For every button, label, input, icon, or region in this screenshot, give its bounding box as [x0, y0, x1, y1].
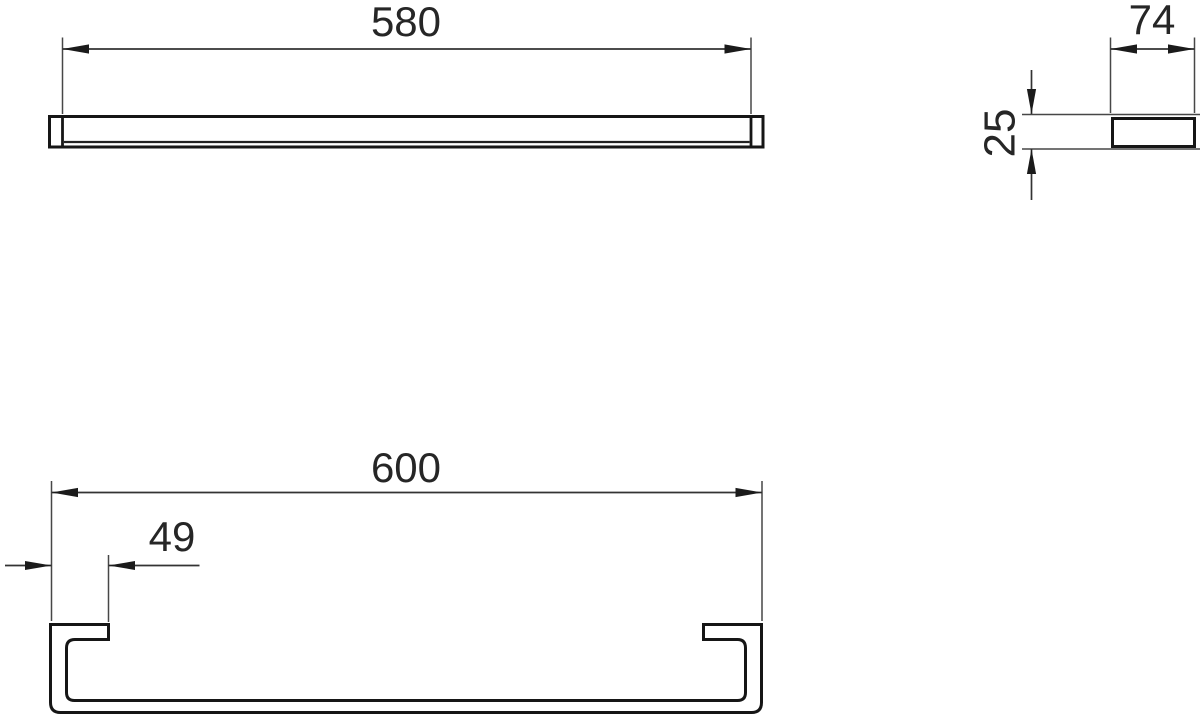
arrowhead-right-icon — [1168, 44, 1195, 53]
side-height-dimension-label: 25 — [976, 109, 1025, 158]
rail-plan-outline — [51, 625, 762, 713]
front-length-dimension-label: 580 — [371, 0, 441, 45]
arrowhead-down-icon — [1027, 89, 1036, 114]
towel-rail-technical-drawing: 580 74 25 600 — [0, 0, 1200, 716]
plan-view: 600 49 — [5, 444, 762, 713]
arrowhead-left-icon — [109, 561, 136, 570]
arrowhead-left-icon — [1111, 44, 1138, 53]
arrowhead-left-icon — [52, 488, 79, 497]
bracket-plate-dimension-label: 49 — [149, 513, 196, 560]
arrowhead-up-icon — [1027, 149, 1036, 174]
arrowhead-right-icon — [736, 488, 763, 497]
rail-profile-outline — [1113, 119, 1195, 147]
arrowhead-right-icon — [25, 561, 52, 570]
plan-length-dimension-label: 600 — [371, 444, 441, 491]
arrowhead-right-icon — [725, 44, 752, 53]
side-view: 74 25 — [976, 0, 1200, 200]
front-view: 580 — [50, 0, 764, 147]
side-depth-dimension-label: 74 — [1129, 0, 1176, 43]
arrowhead-left-icon — [63, 44, 90, 53]
